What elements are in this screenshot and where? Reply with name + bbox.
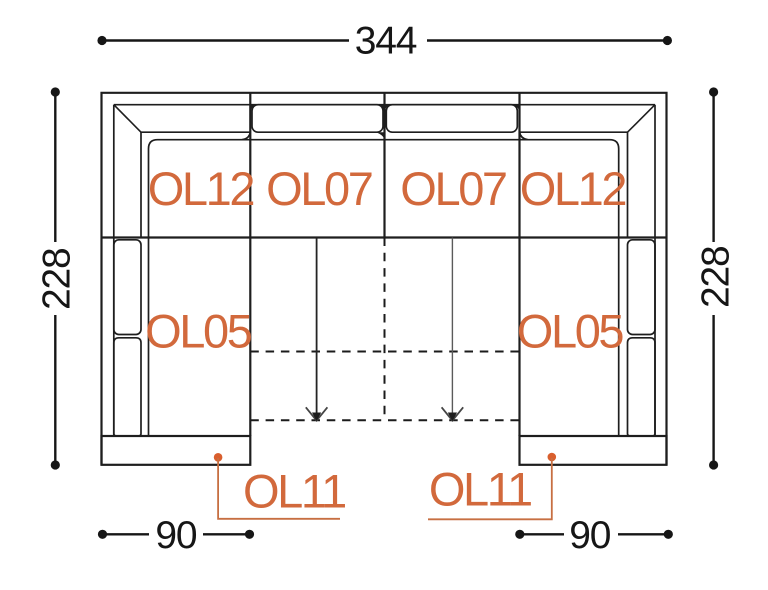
svg-text:OL12: OL12 xyxy=(148,162,254,215)
svg-text:228: 228 xyxy=(35,249,78,310)
svg-text:90: 90 xyxy=(569,514,610,557)
svg-text:OL07: OL07 xyxy=(266,162,372,215)
svg-text:90: 90 xyxy=(155,514,196,557)
svg-text:OL11: OL11 xyxy=(429,462,531,515)
svg-text:OL12: OL12 xyxy=(520,162,626,215)
svg-text:OL07: OL07 xyxy=(400,162,506,215)
svg-text:OL05: OL05 xyxy=(145,305,252,358)
svg-text:OL05: OL05 xyxy=(517,305,624,358)
svg-text:344: 344 xyxy=(355,20,417,63)
svg-text:OL11: OL11 xyxy=(243,464,345,517)
svg-text:228: 228 xyxy=(695,247,738,308)
